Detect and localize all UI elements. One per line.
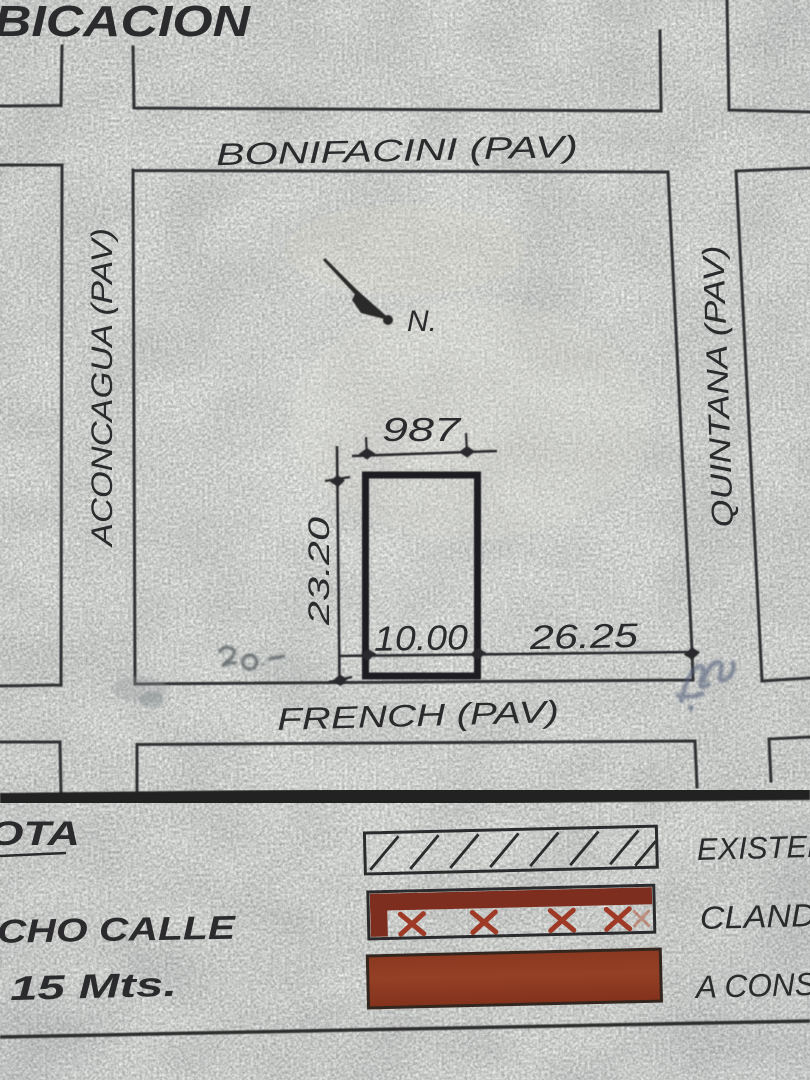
svg-text:A CONS: A CONS	[693, 966, 810, 1005]
svg-text:CLAND: CLAND	[699, 897, 810, 936]
svg-text:EXISTEN: EXISTEN	[696, 829, 810, 867]
svg-text:ANCHO CALLE: ANCHO CALLE	[0, 909, 237, 951]
svg-text:NOTA: NOTA	[0, 815, 80, 853]
svg-text:26.25: 26.25	[528, 617, 638, 657]
svg-text:10.00: 10.00	[374, 618, 469, 659]
svg-text:23.20: 23.20	[303, 517, 336, 627]
svg-text:BICACION: BICACION	[0, 0, 251, 46]
svg-text:15 Mts.: 15 Mts.	[9, 966, 177, 1008]
svg-text:987: 987	[382, 411, 462, 448]
svg-text:N.: N.	[407, 305, 437, 338]
svg-text:ACONCAGUA (PAV): ACONCAGUA (PAV)	[86, 228, 119, 548]
